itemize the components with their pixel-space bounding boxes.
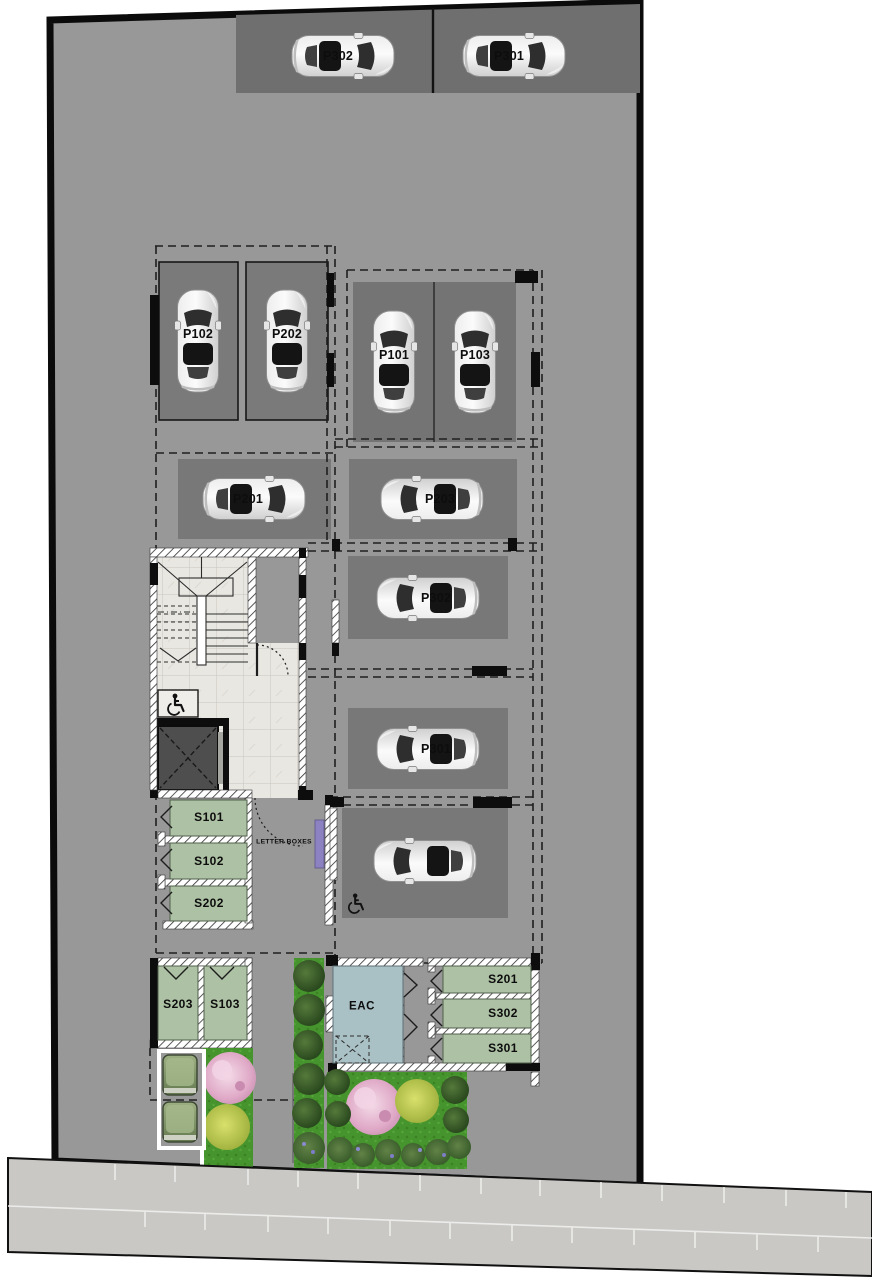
elevator-door <box>218 732 223 784</box>
car-p102 <box>175 290 222 392</box>
eac-room <box>333 966 403 1063</box>
waste-bin-2 <box>163 1102 197 1142</box>
waste-bin-1 <box>163 1055 197 1095</box>
car-p301 <box>377 726 479 773</box>
car-p101 <box>371 311 418 413</box>
yellow-bush-left <box>204 1104 250 1150</box>
site-plan-page: P302 P301 P102 P202 P101 P103 P201 P203 … <box>0 0 872 1280</box>
room-s103 <box>204 966 247 1040</box>
car-p301-street <box>463 33 565 80</box>
car-p302 <box>377 575 479 622</box>
room-s201 <box>443 966 531 993</box>
elevator <box>150 718 229 798</box>
car-p202 <box>264 290 311 392</box>
car-p302-street <box>292 33 394 80</box>
car-p103 <box>452 311 499 413</box>
room-s101 <box>170 800 247 836</box>
room-s302 <box>443 999 531 1028</box>
flowering-tree-main <box>346 1079 402 1135</box>
sidewalk <box>8 1158 872 1276</box>
car-p201 <box>203 476 305 523</box>
yellow-bush-main <box>395 1079 439 1123</box>
car-accessible-spot <box>374 838 476 885</box>
stair-platform-lift <box>158 690 198 717</box>
car-p203 <box>381 476 483 523</box>
letter-boxes <box>315 820 324 868</box>
room-s301 <box>443 1034 531 1063</box>
floor-plan-drawing <box>0 0 872 1280</box>
room-s202 <box>170 886 247 921</box>
room-s102 <box>170 843 247 879</box>
flowering-tree-left <box>204 1052 256 1104</box>
